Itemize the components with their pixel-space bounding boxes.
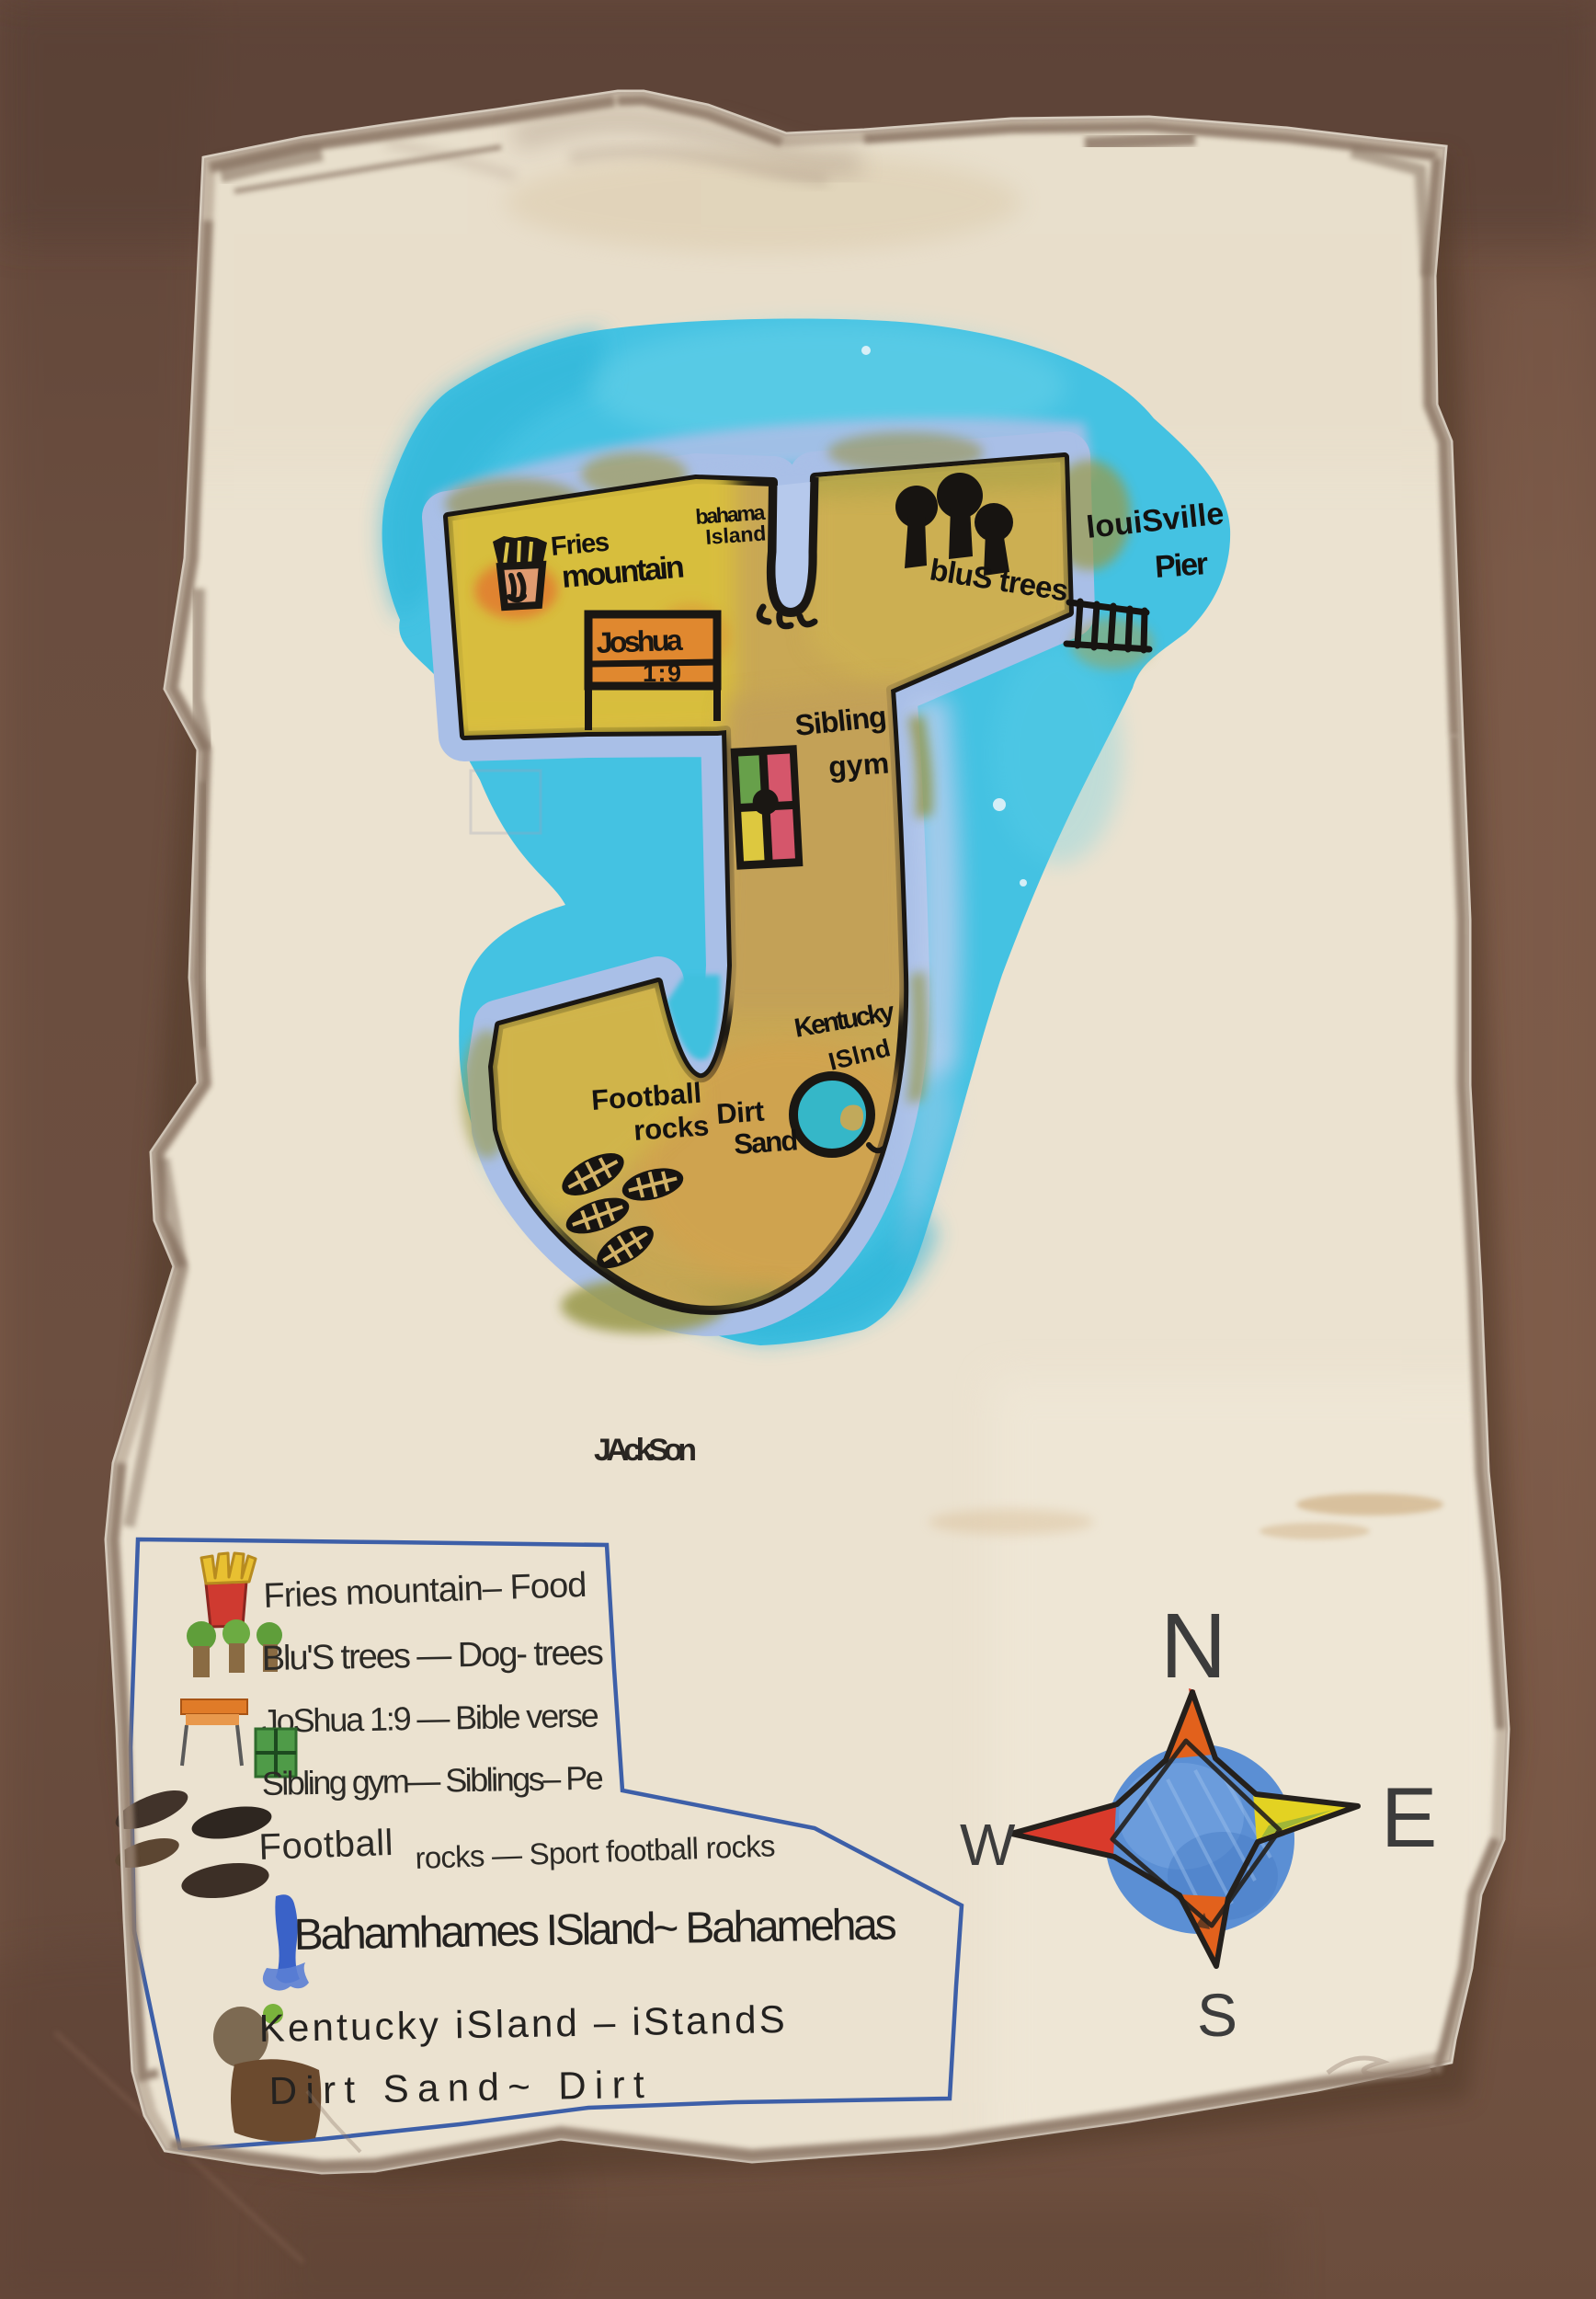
svg-text:S: S [1197,1981,1237,2049]
svg-text:N: N [1160,1595,1226,1698]
svg-text:Sibling gym— Siblings– Pe: Sibling gym— Siblings– Pe [261,1759,604,1802]
svg-text:Pier: Pier [1154,546,1210,585]
svg-text:Island: Island [705,520,768,549]
svg-text:W: W [960,1812,1016,1878]
svg-text:JoShua 1:9 — Bible verse: JoShua 1:9 — Bible verse [261,1697,599,1740]
svg-text:Kentucky iSland – iStandS: Kentucky iSland – iStandS [258,1997,785,2050]
svg-text:Football: Football [258,1823,393,1868]
svg-text:Blu'S trees — Dog- trees: Blu'S trees — Dog- trees [261,1634,604,1678]
svg-text:1:9: 1:9 [643,659,681,687]
svg-text:E: E [1381,1771,1437,1865]
svg-text:JAckSon: JAckSon [594,1433,697,1468]
svg-text:gym: gym [827,746,890,783]
svg-text:Joshua: Joshua [596,623,683,659]
svg-text:Dirt: Dirt [715,1094,765,1130]
svg-text:Sand: Sand [733,1124,799,1161]
svg-text:rocks: rocks [633,1109,710,1147]
